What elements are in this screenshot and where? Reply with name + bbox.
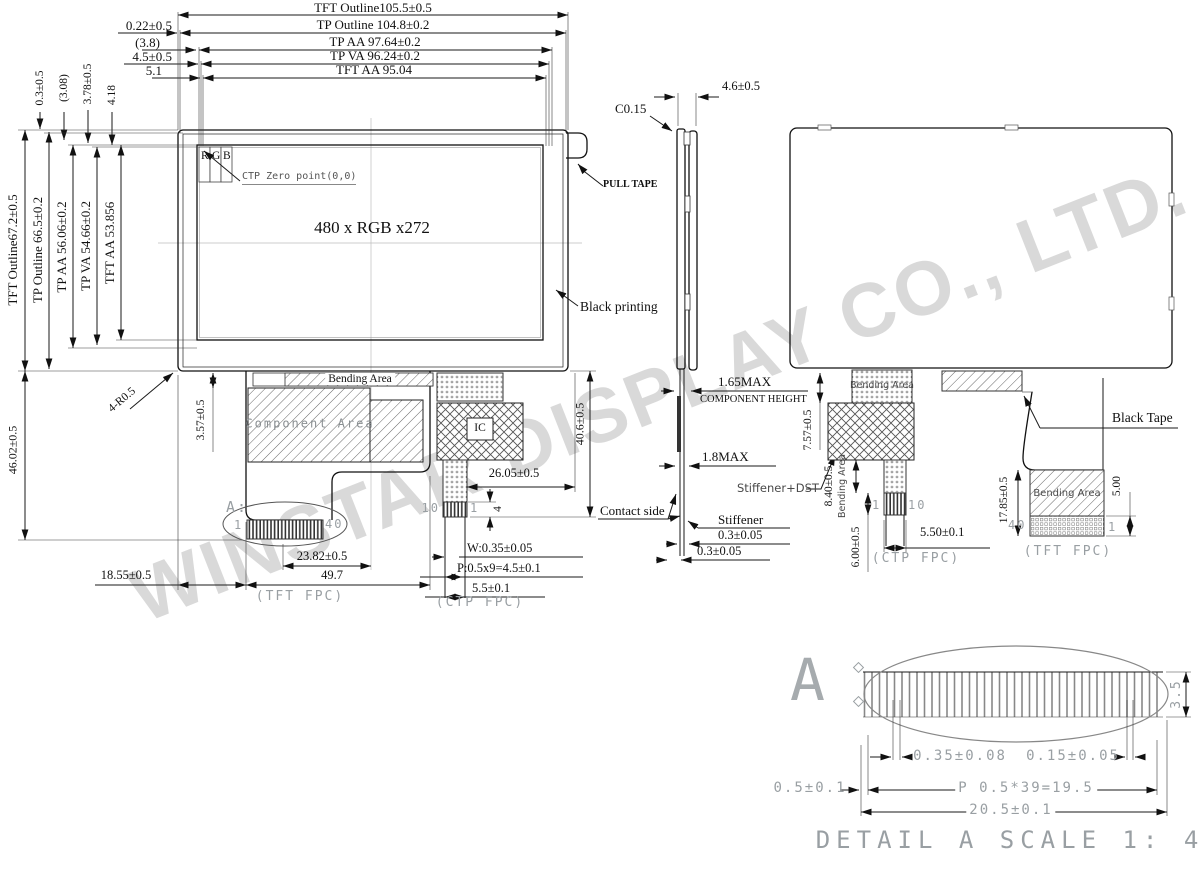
dim-gap-308: (3.08) [58, 74, 70, 102]
ctp-connector-back [884, 493, 906, 515]
tft-pin1-label: 1 [234, 519, 243, 532]
dim-detail-pitch: P 0.5*39=19.5 [955, 781, 1097, 796]
rgb-g-label: G [212, 150, 220, 162]
back-view [790, 125, 1178, 572]
dim-pin-length: 4 [492, 506, 504, 512]
dim-conn-center: 23.82±0.5 [297, 550, 348, 563]
ctp-fpc-label: (CTP FPC) [436, 596, 524, 610]
pull-tape-tab [566, 133, 587, 158]
dim-thickness: 4.6±0.5 [722, 80, 760, 93]
ctp-zero-point-label: CTP Zero point(0,0) [242, 172, 356, 185]
dim-tp-va-width: TP VA 96.24±0.2 [330, 49, 420, 63]
dim-tp-aa-height: TP AA 56.06±0.2 [55, 201, 69, 292]
dim-fpc-height: 40.6±0.5 [574, 403, 587, 446]
dim-back-757: 7.57±0.5 [802, 410, 814, 451]
back-tft-pin1: 1 [1108, 521, 1117, 534]
component-height-label: COMPONENT HEIGHT [700, 394, 807, 405]
back-tft-fpc-label: (TFT FPC) [1024, 545, 1112, 559]
pull-tape-label: PULL TAPE [603, 180, 657, 191]
component-area-label: Component Area [245, 418, 374, 431]
front-view [130, 118, 603, 570]
dim-gap-378: 3.78±0.5 [82, 64, 94, 105]
dim-detail-height: 3.5 [1170, 679, 1184, 708]
dim-detail-tooth-width: 0.35±0.08 [913, 749, 1007, 764]
dim-detail-gap: 0.15±0.05 [1026, 749, 1120, 764]
connector-teeth [863, 672, 1163, 717]
dim-offset-45: 4.5±0.5 [120, 50, 172, 64]
bending-area-label-front: Bending Area [325, 373, 395, 385]
tft-pin40-label: 40 [325, 518, 343, 531]
bending-area-label-rotated: Bending Area [838, 454, 848, 518]
black-printing-label: Black printing [580, 300, 658, 314]
dim-tft-outline-width: TFT Outline105.5±0.5 [314, 1, 432, 15]
stiffener-bar [677, 396, 681, 452]
stiffener-dst-label: Stiffener+DST [737, 482, 819, 494]
stiffener-label: Stiffener [718, 513, 763, 527]
detail-a-letter: A [790, 646, 825, 714]
resolution-label: 480 x RGB x272 [314, 219, 430, 237]
ctp-fpc-connector [443, 502, 467, 517]
back-ctp-fpc-label: (CTP FPC) [872, 552, 960, 566]
dim-tp-outline-height: TP Outline 66.5±0.2 [31, 197, 45, 303]
bending-area-label-tft: Bending Area [1033, 489, 1100, 500]
dim-back-ctp-width: 5.50±0.1 [920, 526, 964, 539]
dim-back-tft-height: 17.85±0.5 [998, 477, 1010, 524]
tft-bending-exit-block [942, 371, 1022, 391]
dim-tp-va-height: TP VA 54.66±0.2 [79, 201, 93, 291]
dim-tft-fpc-width: 49.7 [321, 569, 343, 582]
ctp-pin10-label: 10 [418, 502, 440, 515]
dim-tft-outline-height: TFT Outline67.2±0.5 [6, 194, 20, 305]
mechanical-drawing: WINSTAR DISPLAY CO., LTD. [0, 0, 1200, 871]
rgb-r-label: R [201, 150, 209, 162]
back-ctp-pin10: 10 [908, 499, 926, 512]
dim-detail-total: 20.5±0.1 [966, 803, 1055, 818]
dim-component-height-max: 1.65MAX [718, 375, 771, 389]
contact-side-label: Contact side [600, 504, 665, 518]
dim-stiffener-thickness: 0.3±0.05 [718, 529, 762, 542]
dim-back-tail: 5.00 [1111, 476, 1123, 496]
dim-gap-03: 0.3±0.5 [34, 70, 46, 105]
tft-fpc-label: (TFT FPC) [256, 590, 344, 604]
dim-pin-pitch: P:0.5x9=4.5±0.1 [457, 562, 541, 575]
tft-connector-back [1030, 516, 1104, 536]
black-tape-label: Black Tape [1112, 411, 1173, 425]
dim-ctp-fpc-width: 5.5±0.1 [472, 582, 510, 595]
dim-detail-margin: 0.5±0.1 [773, 781, 846, 796]
dim-back-840: 8.40±0.5 [823, 466, 835, 507]
dim-tft-aa-width: TFT AA 95.04 [336, 63, 412, 77]
dim-fpc-left-offset: 18.55±0.5 [101, 569, 152, 582]
dim-body-height: 46.02±0.5 [7, 426, 20, 475]
dim-pin-width: W:0.35±0.05 [467, 542, 532, 555]
dim-ctp-offset: 26.05±0.5 [489, 467, 540, 480]
chamfer-label: C0.15 [615, 102, 646, 116]
back-ctp-pin1: 1 [872, 499, 881, 512]
tft-fpc-connector [247, 520, 323, 539]
dim-tft-aa-height: TFT AA 53.856 [103, 202, 117, 284]
dim-tp-aa-width: TP AA 97.64±0.2 [329, 35, 420, 49]
dim-back-600: 6.00±0.5 [850, 527, 862, 568]
dim-max-thickness: 1.8MAX [702, 450, 749, 464]
dim-tp-outline-width: TP Outline 104.8±0.2 [317, 18, 430, 32]
back-tft-pin40: 40 [1008, 519, 1026, 532]
dim-gap-418: 4.18 [106, 85, 118, 105]
detail-a-title: DETAIL A SCALE 1: 4 [816, 828, 1200, 853]
ctp-pin1-label: 1 [470, 502, 479, 515]
ctp-bending-block [437, 373, 503, 401]
rgb-b-label: B [223, 150, 231, 162]
component-area-block2 [370, 400, 423, 462]
stiffener-dst-block [828, 403, 914, 460]
dim-offset-38: (3.8) [120, 36, 160, 50]
drawing-linework [0, 0, 1200, 871]
detail-a-ref-label: A: [226, 500, 248, 516]
dim-comp-offset: 3.57±0.5 [195, 400, 207, 441]
dim-offset-51: 5.1 [122, 64, 162, 78]
left-dimensions [18, 130, 243, 540]
tft-outline-hatched-frame [178, 130, 568, 371]
dim-contact-thickness: 0.3±0.05 [697, 545, 741, 558]
bending-area-label-ctp: Bending Area [850, 381, 914, 391]
dim-offset-022: 0.22±0.5 [112, 19, 172, 33]
ic-label: IC [474, 422, 486, 434]
